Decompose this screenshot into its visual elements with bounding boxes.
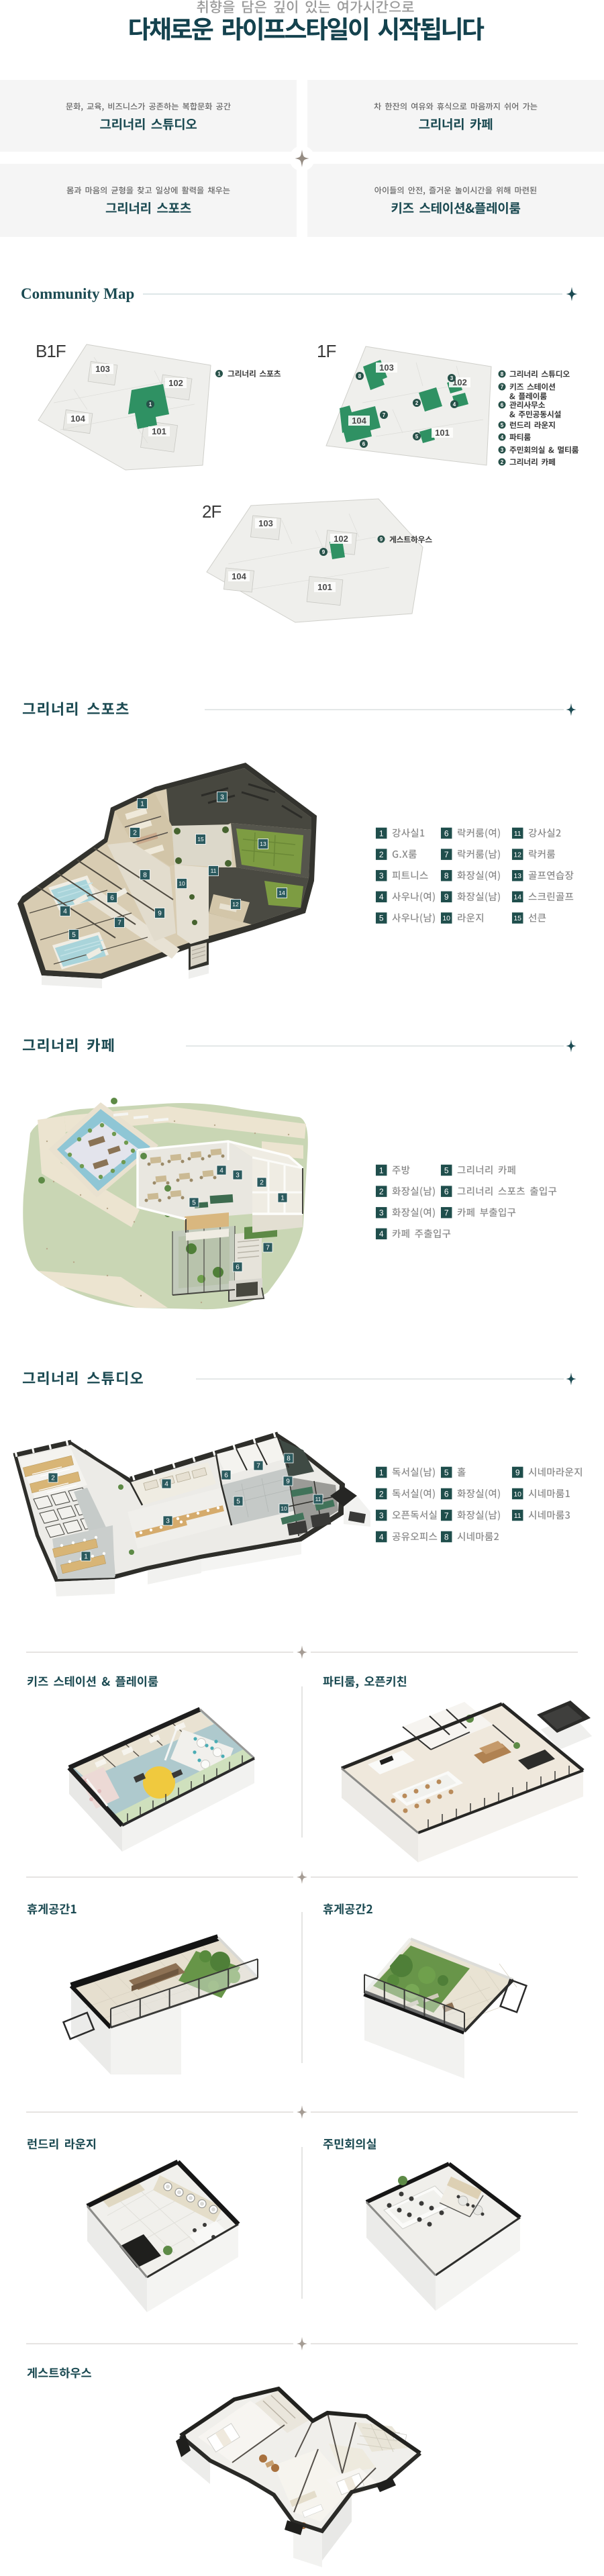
svg-text:9: 9 bbox=[380, 536, 383, 542]
svg-text:103: 103 bbox=[258, 518, 273, 528]
svg-text:3: 3 bbox=[236, 1172, 240, 1180]
svg-text:12: 12 bbox=[513, 851, 521, 859]
svg-text:2: 2 bbox=[260, 1180, 264, 1187]
svg-text:3: 3 bbox=[450, 375, 454, 381]
svg-text:7: 7 bbox=[117, 920, 121, 927]
svg-text:3: 3 bbox=[220, 794, 224, 802]
svg-text:7: 7 bbox=[383, 412, 386, 418]
svg-text:6: 6 bbox=[444, 1187, 449, 1196]
svg-text:1: 1 bbox=[281, 1195, 285, 1202]
svg-text:5: 5 bbox=[501, 422, 504, 428]
svg-text:6: 6 bbox=[236, 1264, 240, 1272]
svg-text:5: 5 bbox=[444, 1468, 449, 1477]
svg-text:5: 5 bbox=[379, 914, 384, 923]
svg-text:104: 104 bbox=[70, 414, 85, 424]
svg-text:104: 104 bbox=[232, 571, 246, 581]
svg-text:1F: 1F bbox=[317, 341, 336, 361]
svg-text:5: 5 bbox=[444, 1165, 449, 1175]
svg-text:2: 2 bbox=[379, 1187, 384, 1196]
svg-text:7: 7 bbox=[256, 1463, 260, 1470]
svg-text:8: 8 bbox=[444, 871, 449, 881]
svg-text:11: 11 bbox=[514, 1512, 521, 1520]
svg-text:10: 10 bbox=[281, 1505, 287, 1512]
svg-text:3: 3 bbox=[379, 1208, 384, 1218]
svg-text:11: 11 bbox=[315, 1496, 321, 1502]
svg-text:101: 101 bbox=[435, 428, 450, 438]
svg-text:4: 4 bbox=[63, 908, 67, 916]
svg-text:7: 7 bbox=[444, 850, 449, 859]
svg-text:3: 3 bbox=[379, 871, 384, 881]
svg-text:4: 4 bbox=[164, 1481, 168, 1488]
svg-text:7: 7 bbox=[444, 1208, 449, 1218]
svg-text:7: 7 bbox=[266, 1245, 270, 1252]
svg-text:1: 1 bbox=[379, 828, 384, 838]
svg-text:7: 7 bbox=[501, 384, 504, 390]
svg-text:1: 1 bbox=[217, 371, 221, 377]
svg-text:15: 15 bbox=[197, 836, 204, 843]
svg-text:2: 2 bbox=[379, 1489, 384, 1498]
svg-text:1: 1 bbox=[379, 1468, 384, 1477]
svg-text:4: 4 bbox=[379, 1229, 384, 1239]
svg-text:4: 4 bbox=[379, 1532, 384, 1541]
svg-text:3: 3 bbox=[379, 1511, 384, 1520]
svg-text:2: 2 bbox=[133, 830, 137, 837]
svg-text:103: 103 bbox=[379, 363, 394, 373]
svg-text:1: 1 bbox=[140, 801, 144, 808]
svg-text:4: 4 bbox=[501, 434, 504, 440]
svg-text:103: 103 bbox=[95, 364, 110, 374]
svg-text:11: 11 bbox=[211, 867, 217, 874]
svg-text:7: 7 bbox=[444, 1511, 449, 1520]
svg-text:8: 8 bbox=[444, 1532, 449, 1541]
svg-text:1: 1 bbox=[379, 1165, 384, 1175]
svg-text:9: 9 bbox=[286, 1478, 290, 1486]
svg-text:2F: 2F bbox=[202, 502, 221, 522]
svg-text:8: 8 bbox=[143, 872, 147, 879]
svg-text:13: 13 bbox=[513, 872, 521, 880]
svg-text:12: 12 bbox=[232, 901, 239, 908]
svg-text:9: 9 bbox=[322, 549, 325, 555]
svg-text:11: 11 bbox=[514, 830, 521, 838]
svg-text:6: 6 bbox=[110, 895, 114, 902]
svg-text:101: 101 bbox=[317, 582, 332, 592]
svg-text:B1F: B1F bbox=[36, 341, 66, 361]
svg-text:1: 1 bbox=[84, 1554, 88, 1561]
svg-text:9: 9 bbox=[158, 910, 162, 918]
svg-text:8: 8 bbox=[358, 373, 362, 379]
svg-text:3: 3 bbox=[166, 1518, 170, 1525]
svg-text:14: 14 bbox=[279, 890, 285, 896]
svg-text:8: 8 bbox=[287, 1456, 291, 1463]
svg-text:101: 101 bbox=[152, 426, 166, 436]
svg-text:2: 2 bbox=[379, 850, 384, 859]
svg-text:9: 9 bbox=[444, 892, 449, 902]
svg-text:Community Map: Community Map bbox=[21, 285, 134, 302]
svg-text:10: 10 bbox=[179, 880, 185, 887]
svg-text:6: 6 bbox=[362, 441, 366, 447]
svg-text:4: 4 bbox=[453, 401, 456, 408]
svg-text:4: 4 bbox=[379, 892, 384, 902]
svg-text:3: 3 bbox=[501, 447, 504, 453]
svg-text:15: 15 bbox=[513, 914, 521, 922]
svg-text:13: 13 bbox=[260, 841, 266, 847]
svg-text:6: 6 bbox=[444, 828, 449, 838]
svg-text:6: 6 bbox=[224, 1472, 228, 1480]
svg-text:9: 9 bbox=[515, 1468, 520, 1477]
svg-text:4: 4 bbox=[219, 1167, 223, 1175]
svg-text:5: 5 bbox=[415, 434, 419, 440]
svg-text:1: 1 bbox=[149, 401, 152, 408]
svg-text:2: 2 bbox=[51, 1475, 55, 1482]
svg-text:5: 5 bbox=[192, 1200, 196, 1207]
svg-text:5: 5 bbox=[72, 932, 76, 939]
svg-text:102: 102 bbox=[334, 534, 348, 544]
svg-text:10: 10 bbox=[442, 914, 450, 922]
svg-text:10: 10 bbox=[513, 1490, 521, 1498]
svg-text:6: 6 bbox=[444, 1489, 449, 1498]
svg-text:5: 5 bbox=[236, 1498, 240, 1506]
svg-text:102: 102 bbox=[168, 378, 183, 388]
svg-text:6: 6 bbox=[501, 402, 504, 408]
svg-text:2: 2 bbox=[415, 400, 419, 406]
svg-text:104: 104 bbox=[352, 416, 366, 426]
svg-text:14: 14 bbox=[513, 894, 521, 902]
svg-text:2: 2 bbox=[501, 459, 504, 465]
svg-text:8: 8 bbox=[501, 371, 504, 377]
